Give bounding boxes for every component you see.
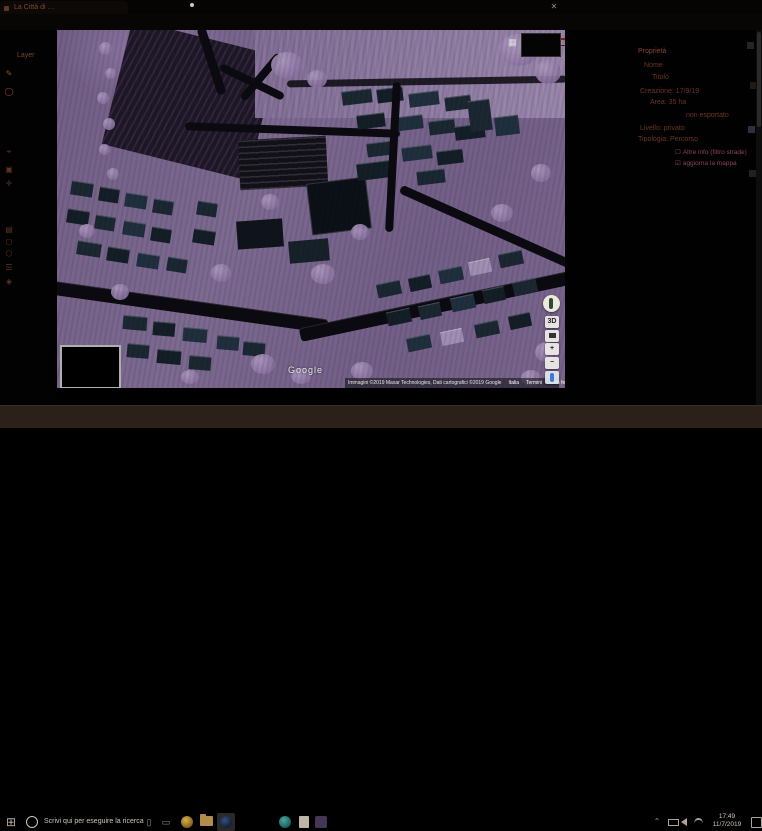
close-icon[interactable]: ✕ [549, 2, 559, 12]
taskbar-clock[interactable]: 17:49 11/7/2019 [706, 813, 748, 829]
zoom-in-button[interactable]: + [545, 343, 559, 355]
marker-icon[interactable]: ⌖ [3, 146, 15, 157]
draw-icon[interactable]: ✎ [3, 68, 15, 79]
browser-address-bar: ← → ↻ H [0, 14, 762, 30]
list-icon[interactable]: ☰ [3, 262, 15, 273]
active-app-icon [220, 816, 232, 828]
field-area: Area: 35 ha [650, 99, 686, 106]
field-nome: Nome [644, 62, 663, 69]
zoom-out-button[interactable]: − [545, 357, 559, 369]
checkbox-icon: ☑ [675, 160, 681, 167]
map-type-box[interactable] [521, 33, 561, 57]
app-teal-icon[interactable] [279, 816, 291, 828]
checkbox-icon: ☐ [675, 149, 681, 156]
attribution-text: Immagini ©2019 Maxar Technologies, Dati … [348, 378, 501, 388]
network-icon[interactable] [694, 818, 703, 829]
polygon-icon[interactable]: ⬡ [3, 248, 15, 259]
clock-date: 11/7/2019 [706, 821, 748, 829]
settings-icon[interactable]: ◈ [3, 276, 15, 287]
map-attribution: Immagini ©2019 Maxar Technologies, Dati … [345, 378, 559, 388]
task-view-icon[interactable]: ▭ [159, 815, 173, 829]
compass-pegman-control[interactable] [543, 295, 560, 312]
app-document-icon[interactable] [299, 816, 309, 828]
active-app-button[interactable] [217, 813, 235, 831]
scrollbar-thumb[interactable] [757, 32, 761, 127]
left-toolbar: Layer ✎ ◯ ⌖ ▣ ✛ ▤ ◻ ⬡ ☰ ◈ [0, 30, 56, 405]
map-canvas[interactable]: Google Immagini ©2019 Maxar Technologies… [57, 30, 565, 388]
field-tipologia: Tipologia: Percorso [638, 136, 698, 143]
taskbar: ⊞ Scrivi qui per eseguire la ricerca ▯ ▭… [0, 405, 762, 428]
panel-title: Proprietà [638, 48, 666, 55]
field-titolo: Titolo [652, 74, 669, 81]
grid-icon[interactable]: ▦ [508, 38, 517, 47]
field-export-status: non esportato [686, 112, 729, 119]
tray-chevron-icon[interactable]: ⌃ [650, 815, 664, 829]
layer-label: Layer [17, 52, 35, 59]
field-creazione: Creazione: 17/9/19 [640, 88, 699, 95]
new-tab-icon[interactable] [190, 3, 194, 7]
overview-inset-box[interactable] [60, 345, 121, 388]
layers-icon[interactable]: ▤ [3, 224, 15, 235]
attribution-link-italia[interactable]: Italia [508, 378, 519, 388]
action-center-icon[interactable] [751, 817, 762, 828]
browser-tab[interactable]: La Città di … [0, 1, 128, 14]
tab-title: La Città di … [14, 4, 54, 11]
browser-tab-bar: La Città di … ✕ [0, 0, 762, 14]
clock-time: 17:49 [706, 813, 748, 821]
add-icon[interactable]: ✛ [3, 178, 15, 189]
field-livello: Livello: privato [640, 125, 685, 132]
checkbox-filtro[interactable]: ☐Altre info (filtro strade) [675, 148, 747, 156]
area-icon[interactable]: ▣ [3, 164, 15, 175]
rect-tool-icon[interactable]: ◻ [3, 236, 15, 247]
speaker-icon[interactable] [681, 818, 687, 826]
properties-panel: Proprietà Nome Titolo Creazione: 17/9/19… [565, 30, 762, 405]
taskbar-search-text[interactable]: Scrivi qui per eseguire la ricerca [44, 818, 144, 825]
google-watermark: Google [288, 365, 323, 375]
attribution-link-termini[interactable]: Termini [526, 378, 542, 388]
panel-edge-icon [748, 126, 755, 133]
3d-toggle-button[interactable]: 3D [545, 316, 559, 328]
street-view-pegman-button[interactable] [545, 371, 559, 384]
tilt-button[interactable] [545, 330, 559, 342]
circle-tool-icon[interactable]: ◯ [3, 86, 15, 97]
start-button[interactable]: ⊞ [4, 815, 18, 829]
panel-edge-icon [749, 170, 756, 177]
phone-link-icon[interactable]: ▯ [142, 815, 156, 829]
checkbox-aggiorna[interactable]: ☑aggiorna la mappa [675, 159, 737, 167]
file-explorer-icon[interactable] [200, 816, 213, 826]
app-yellow-icon[interactable] [181, 816, 193, 828]
tilt-icon [549, 333, 556, 338]
cortana-search-icon[interactable] [26, 816, 38, 828]
app-dark-icon[interactable] [315, 816, 327, 828]
battery-icon[interactable] [668, 819, 679, 826]
tab-favicon-icon [4, 6, 9, 11]
panel-edge-icon [747, 42, 754, 49]
pegman-icon [550, 373, 554, 382]
